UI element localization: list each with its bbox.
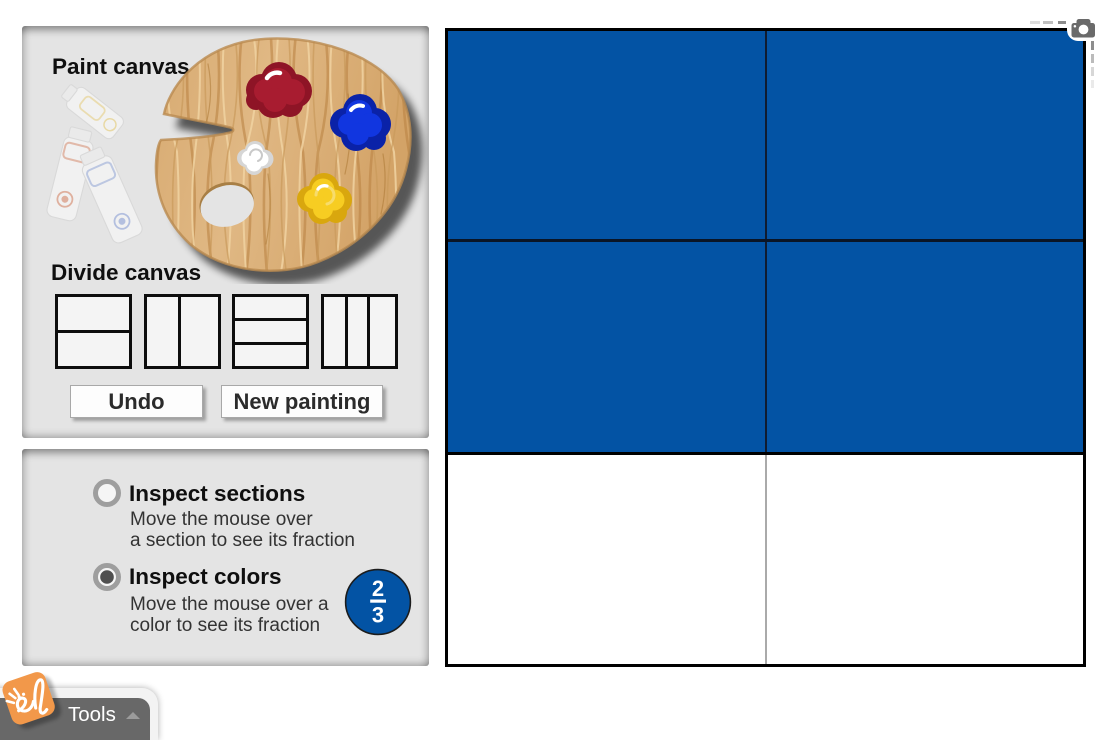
svg-text:3: 3 [372, 603, 384, 628]
svg-text:2: 2 [372, 576, 384, 601]
